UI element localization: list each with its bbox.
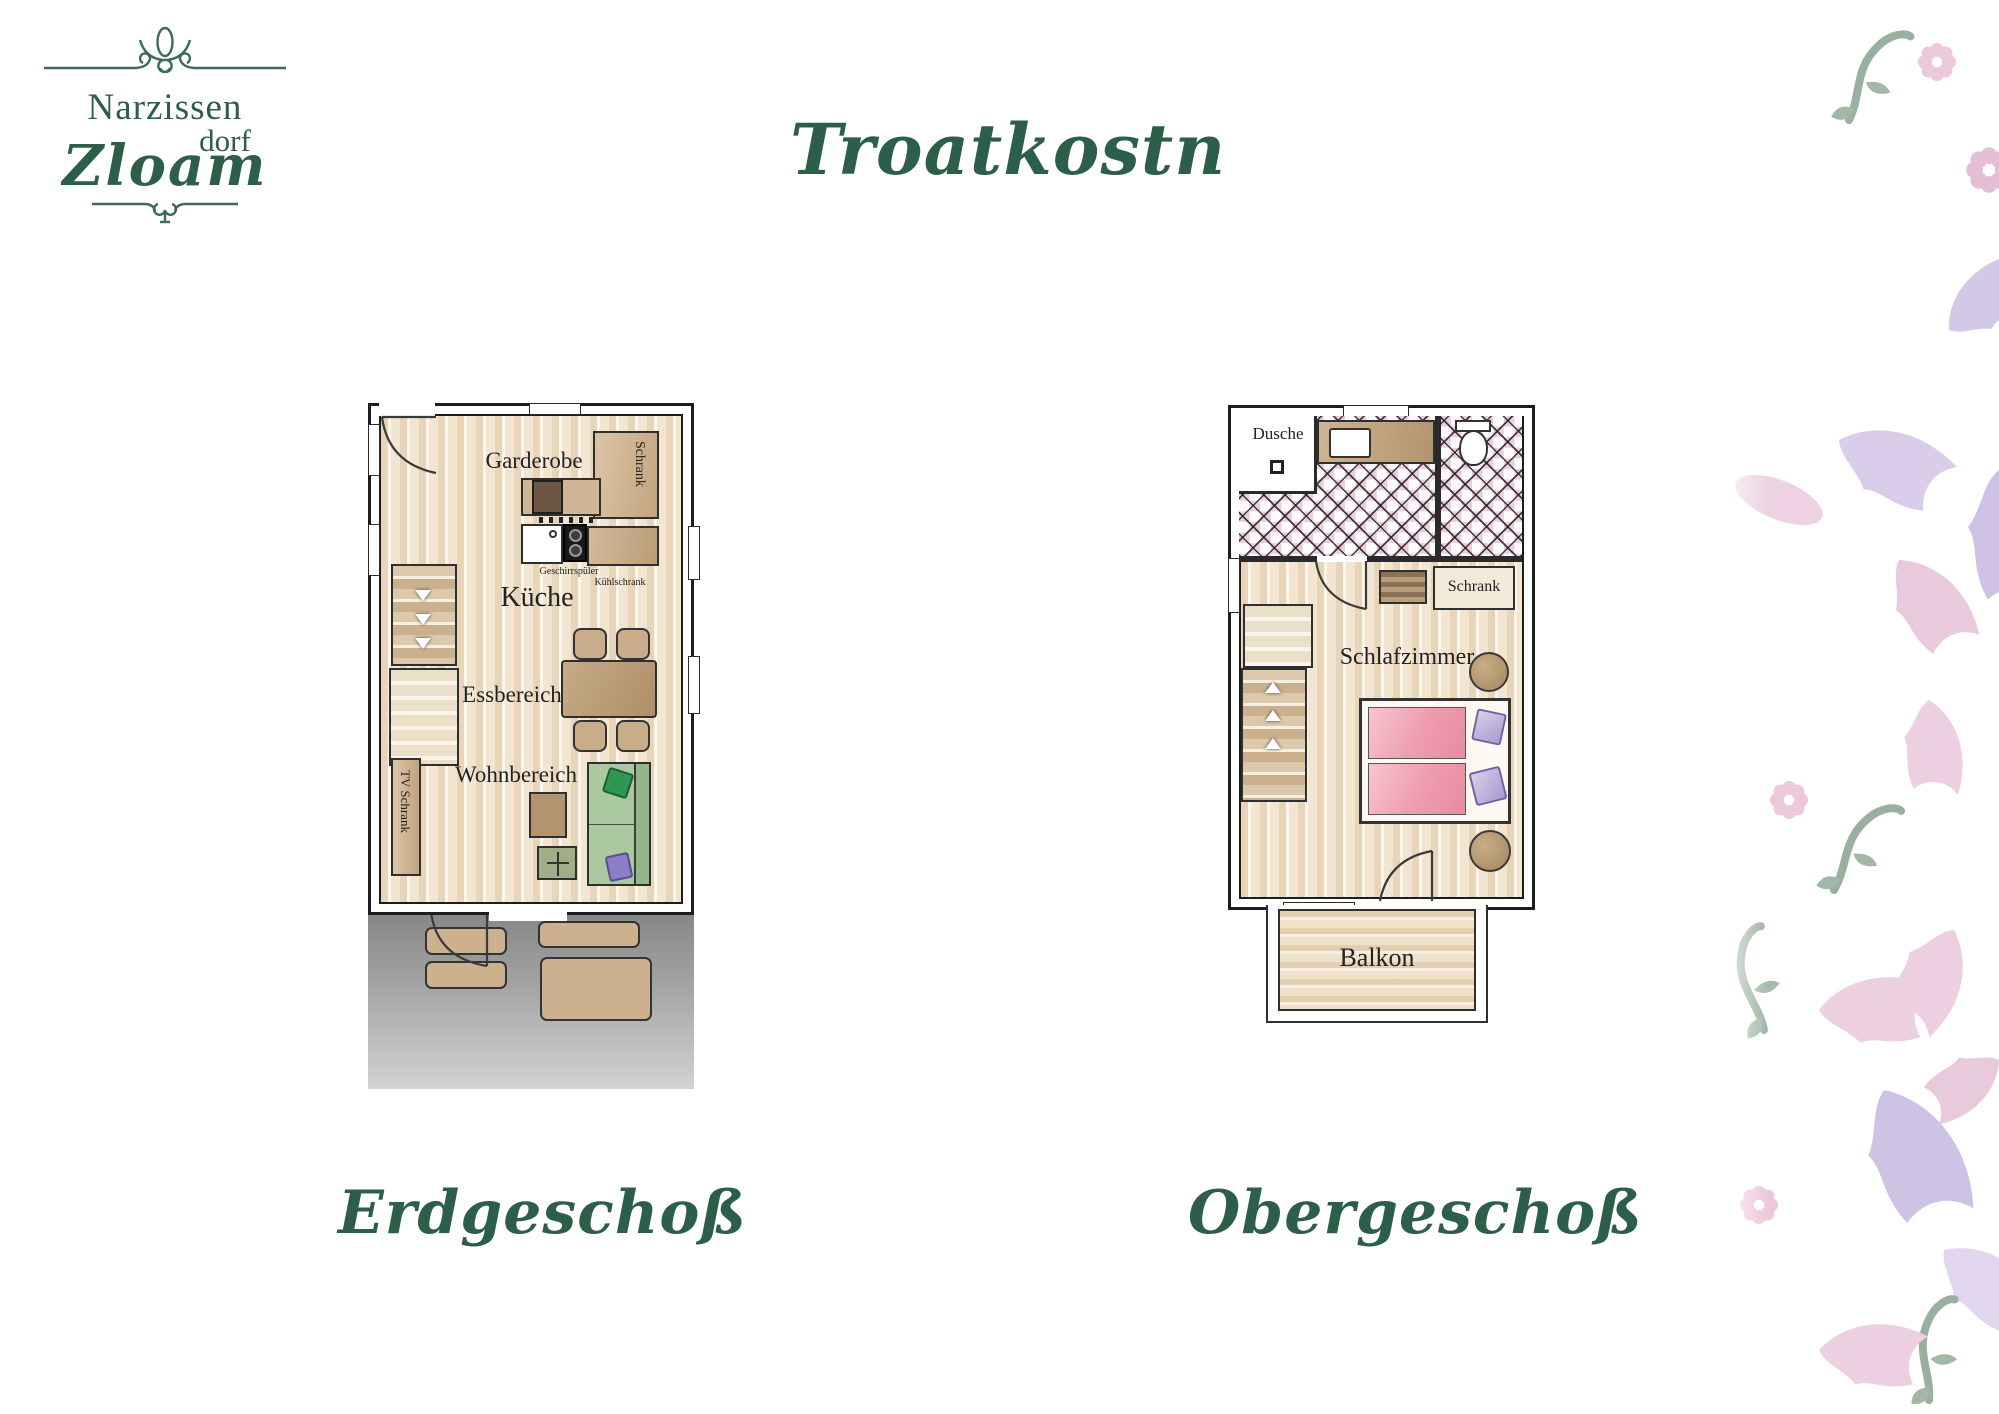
burner-icon: [569, 544, 582, 557]
logo-flourish-top-icon: [40, 22, 290, 80]
wardrobe-cabinet: Schrank: [1433, 566, 1515, 610]
faucet-icon: [549, 530, 557, 538]
stair-arrow-icon: [1265, 738, 1281, 749]
purple-pillow: [605, 852, 634, 882]
stair-arrow-icon: [415, 614, 431, 625]
terrace-area: [368, 915, 694, 1089]
burner-icon: [569, 529, 582, 542]
wardrobe-label: Schrank: [631, 441, 647, 487]
double-bed: [1359, 698, 1511, 824]
bed-pillow: [1468, 766, 1507, 807]
hook-strip: [539, 517, 599, 523]
logo-flourish-bottom-icon: [90, 194, 240, 228]
sofa-cushion-split: [589, 824, 634, 825]
tv-cabinet: TV Schrank: [391, 758, 421, 876]
brand-logo: Narzissen dorf Zloam: [38, 22, 292, 233]
dining-chair: [573, 720, 607, 752]
window-top: [529, 403, 581, 415]
wardrobe-cabinet: Schrank: [593, 431, 659, 519]
window-left: [1228, 558, 1240, 613]
stair-arrow-icon: [1265, 682, 1281, 693]
room-label-wohnbereich: Wohnbereich: [431, 762, 601, 788]
sofa: [587, 762, 651, 886]
dresser: [1379, 570, 1427, 604]
window-left-upper: [368, 424, 380, 476]
page-title: Troatkostn: [790, 108, 1220, 191]
washbasin: [1329, 428, 1371, 458]
nightstand: [1469, 652, 1509, 692]
sofa-back: [634, 764, 649, 884]
bed-pillow: [1471, 708, 1507, 746]
window-left-lower: [368, 524, 380, 576]
terrace-bench: [538, 921, 640, 948]
bathroom-wall: [1239, 556, 1522, 562]
toilet-bowl: [1459, 430, 1488, 466]
plant-icon: [557, 852, 559, 876]
staircase-upper-flight: [391, 564, 457, 666]
dining-chair: [616, 628, 650, 660]
logo-line1: Narzissen: [38, 89, 292, 126]
dining-chair: [616, 720, 650, 752]
room-label-kueche: Küche: [467, 582, 607, 614]
pattern-fade: [1699, 0, 1769, 1414]
caption-upper-floor: Obergeschoß: [1188, 1178, 1588, 1248]
shower-room: Dusche: [1239, 416, 1317, 494]
dining-chair: [573, 628, 607, 660]
window-right-kitchen: [688, 526, 700, 580]
stair-arrow-icon: [1265, 710, 1281, 721]
stair-arrow-icon: [415, 638, 431, 649]
bathroom-door-arc-icon: [1315, 560, 1367, 612]
staircase-upper-flight: [1243, 604, 1313, 668]
logo-line3: Zloam: [38, 141, 292, 191]
floral-pattern-band: [1699, 0, 1999, 1414]
label-dishwasher: Geschirrspüler: [521, 566, 617, 577]
terrace-bench: [540, 957, 652, 1021]
plant-icon: [547, 862, 569, 864]
wc-partition-wall: [1435, 416, 1441, 556]
stove: [563, 524, 587, 562]
ground-floor-plan: Garderobe Schrank Geschirrspüler Kühlsch…: [368, 403, 694, 915]
terrace-door-arc-icon: [430, 911, 488, 969]
shower-drain-icon: [1270, 460, 1284, 474]
balcony-area: Balkon: [1266, 905, 1488, 1023]
upper-floor-plan: Dusche Schrank Schlafzimmer: [1228, 405, 1535, 910]
nightstand: [1469, 830, 1511, 872]
duvet: [1368, 763, 1466, 815]
window-right-dining: [688, 656, 700, 714]
stair-arrow-icon: [415, 590, 431, 601]
vanity-counter: [1317, 420, 1435, 464]
caption-ground-floor: Erdgeschoß: [338, 1178, 672, 1248]
balcony-door-arc-icon: [1379, 848, 1433, 902]
room-label-dusche: Dusche: [1245, 424, 1311, 444]
coffee-table: [529, 792, 567, 838]
fridge-counter: [587, 526, 659, 566]
dining-table: [561, 660, 657, 718]
floorplan-page: Narzissen dorf Zloam Troatkostn: [0, 0, 1999, 1414]
room-label-garderobe: Garderobe: [459, 448, 609, 474]
entry-door-arc-icon: [381, 416, 437, 474]
staircase-lower-flight: [1241, 668, 1307, 802]
terrace-door-opening: [489, 908, 567, 921]
green-pillow: [602, 767, 635, 800]
coffee-machine: [532, 480, 563, 514]
wardrobe-label: Schrank: [1435, 578, 1513, 596]
tv-cabinet-label: TV Schrank: [397, 770, 413, 833]
plant-table: [537, 846, 577, 880]
room-label-balkon: Balkon: [1268, 943, 1486, 973]
kitchen-sink: [521, 524, 563, 564]
duvet: [1368, 707, 1466, 759]
entry-door-opening: [379, 403, 435, 416]
